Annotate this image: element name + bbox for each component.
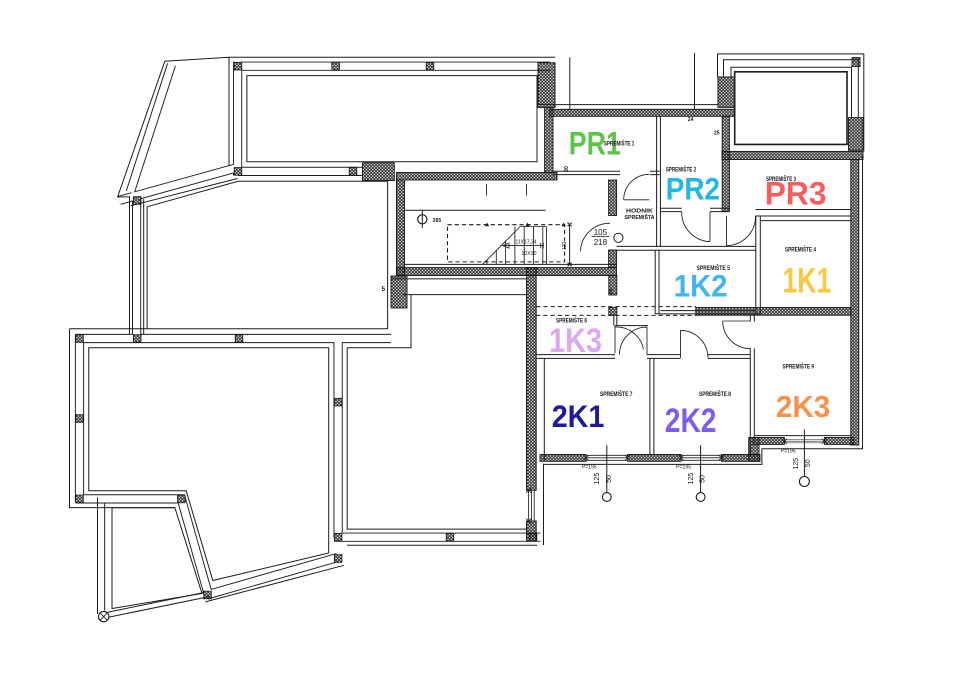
svg-text:SPREMIŠTE 2: SPREMIŠTE 2: [666, 165, 697, 173]
svg-text:25: 25: [714, 131, 720, 137]
svg-text:P=195: P=195: [582, 465, 597, 471]
svg-text:SPREMIŠTE 9: SPREMIŠTE 9: [783, 363, 815, 371]
svg-text:50: 50: [606, 475, 613, 483]
svg-text:125: 125: [688, 473, 695, 485]
svg-text:SPREMIŠTE 6: SPREMIŠTE 6: [556, 317, 587, 325]
svg-text:125: 125: [793, 458, 800, 470]
svg-text:24: 24: [688, 117, 694, 123]
svg-text:1K1: 1K1: [783, 261, 832, 301]
svg-text:1K2: 1K2: [674, 268, 728, 303]
svg-text:SPREMIŠTE 7: SPREMIŠTE 7: [600, 390, 633, 398]
svg-text:265: 265: [433, 218, 442, 224]
svg-text:10X30: 10X30: [522, 251, 537, 257]
svg-text:25: 25: [609, 289, 615, 295]
svg-text:1K3: 1K3: [549, 322, 602, 360]
svg-text:SPREMIŠTA: SPREMIŠTA: [625, 213, 655, 221]
svg-text:50: 50: [700, 475, 707, 483]
svg-text:SPREMIŠTE 4: SPREMIŠTE 4: [785, 246, 816, 254]
svg-text:105: 105: [594, 228, 608, 237]
svg-text:2K2: 2K2: [665, 402, 717, 440]
svg-text:11X17,24: 11X17,24: [516, 240, 537, 246]
svg-text:SPREMIŠTE 1: SPREMIŠTE 1: [604, 140, 635, 148]
svg-text:HODNIK: HODNIK: [626, 209, 653, 215]
svg-text:PR2: PR2: [666, 171, 720, 206]
svg-text:5: 5: [381, 286, 385, 293]
svg-text:120: 120: [562, 242, 568, 251]
svg-text:SPREMIŠTE 5: SPREMIŠTE 5: [697, 264, 731, 272]
svg-text:2K3: 2K3: [776, 389, 830, 424]
svg-text:SPREMIŠTE 3: SPREMIŠTE 3: [766, 175, 796, 183]
svg-text:218: 218: [594, 238, 608, 247]
svg-text:P=195: P=195: [781, 448, 796, 454]
svg-text:2K1: 2K1: [552, 399, 605, 434]
svg-text:SPREMIŠTE 8: SPREMIŠTE 8: [699, 390, 731, 398]
svg-text:20: 20: [564, 166, 570, 172]
svg-text:50: 50: [805, 459, 812, 467]
svg-text:P=195: P=195: [676, 465, 691, 471]
svg-text:125: 125: [594, 473, 601, 485]
